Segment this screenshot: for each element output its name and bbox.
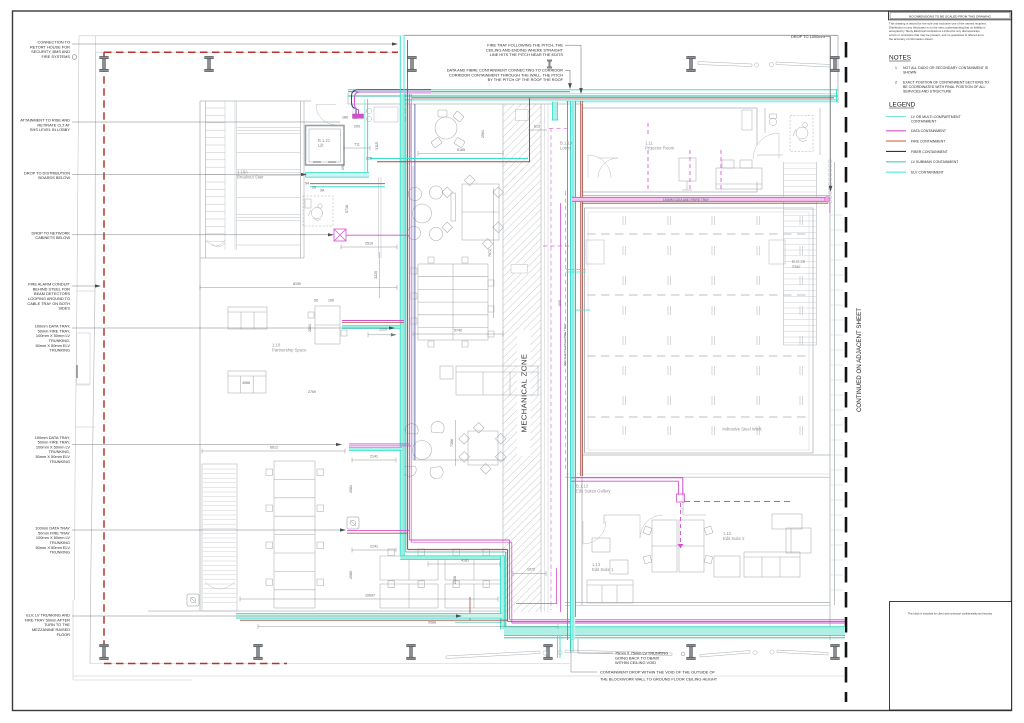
- svg-text:4966: 4966: [242, 381, 250, 385]
- svg-text:5185: 5185: [457, 148, 465, 152]
- svg-text:200: 200: [354, 125, 360, 129]
- svg-text:MECHANICAL ZONE: MECHANICAL ZONE: [520, 354, 529, 433]
- svg-text:608: 608: [558, 300, 562, 306]
- svg-text:8150: 8150: [293, 282, 301, 286]
- svg-text:150mm DATA AND FIBRE TRAY: 150mm DATA AND FIBRE TRAY: [563, 323, 567, 366]
- svg-text:CABINETS BELOW: CABINETS BELOW: [35, 235, 70, 240]
- svg-text:225: 225: [366, 157, 372, 161]
- svg-text:FIBER CONTAINMENT: FIBER CONTAINMENT: [911, 150, 949, 154]
- svg-text:10697: 10697: [365, 594, 375, 598]
- svg-text:7356: 7356: [450, 439, 454, 447]
- svg-text:2080: 2080: [349, 571, 353, 579]
- svg-text:1: 1: [895, 66, 897, 70]
- svg-text:9586: 9586: [428, 621, 436, 625]
- svg-text:CONTINUED ON ADJACENT SHEET: CONTINUED ON ADJACENT SHEET: [856, 308, 863, 412]
- svg-text:2081: 2081: [349, 485, 353, 493]
- svg-text:NOT ALL DADO OR SECONDARY CONT: NOT ALL DADO OR SECONDARY CONTAINMENT IS: [903, 66, 989, 70]
- svg-text:94: 94: [305, 182, 309, 186]
- svg-text:Edit Suite 1: Edit Suite 1: [592, 567, 614, 572]
- svg-text:Edit Suites Gallery: Edit Suites Gallery: [576, 489, 611, 494]
- svg-text:LV SUBMAIN CONTAINMENT: LV SUBMAIN CONTAINMENT: [911, 160, 959, 164]
- svg-text:25: 25: [312, 186, 316, 190]
- svg-text:1220: 1220: [379, 328, 387, 332]
- svg-text:50: 50: [314, 299, 318, 303]
- svg-text:THE BLOCKWORK WALL TO GROUND F: THE BLOCKWORK WALL TO GROUND FLOOR CEILI…: [600, 676, 718, 681]
- svg-text:TRUNKING: TRUNKING: [50, 550, 70, 555]
- svg-text:1972: 1972: [527, 568, 535, 572]
- svg-text:5718: 5718: [345, 205, 349, 213]
- svg-text:711: 711: [354, 143, 360, 147]
- svg-text:2561: 2561: [481, 130, 485, 138]
- svg-text:180: 180: [342, 116, 348, 120]
- svg-text:9A: 9A: [320, 189, 325, 193]
- svg-text:Stair: Stair: [792, 264, 801, 269]
- svg-text:CONTAINMENT: CONTAINMENT: [911, 120, 937, 124]
- svg-text:BE COORDINATED WITH FINAL POSI: BE COORDINATED WITH FINAL POSITION OF AL…: [903, 85, 986, 89]
- svg-text:Lobby: Lobby: [560, 146, 572, 151]
- svg-text:2: 2: [895, 80, 897, 84]
- svg-text:7672: 7672: [488, 249, 492, 257]
- svg-text:150MM DATA AND FIBRE TRAY: 150MM DATA AND FIBRE TRAY: [663, 198, 710, 202]
- svg-text:FLOOR: FLOOR: [57, 632, 71, 637]
- svg-text:CONTAINMENT DROP WITHIN THE VO: CONTAINMENT DROP WITHIN THE VOID OF THE …: [600, 670, 715, 675]
- svg-text:SHS LEVEL IN LOBBY: SHS LEVEL IN LOBBY: [30, 127, 70, 132]
- svg-text:NO DIMENSIONS TO BE SCALED FRO: NO DIMENSIONS TO BE SCALED FROM THIS DRA…: [909, 15, 991, 19]
- svg-text:LV OR MULTI-COMPARTMENT: LV OR MULTI-COMPARTMENT: [911, 115, 962, 119]
- svg-text:EXACT POSITION OF CONTAINMENT: EXACT POSITION OF CONTAINMENT SECTIONS T…: [903, 80, 989, 84]
- svg-text:BY THE PITCH OF THE ROOF THE R: BY THE PITCH OF THE ROOF THE ROOF: [488, 77, 564, 82]
- svg-text:SIDES: SIDES: [58, 306, 70, 311]
- svg-text:FIRE CONTAINMENT: FIRE CONTAINMENT: [911, 139, 946, 143]
- svg-text:Edit Suite 2: Edit Suite 2: [723, 536, 745, 541]
- svg-text:6612: 6612: [270, 446, 278, 450]
- svg-text:5740: 5740: [454, 329, 462, 333]
- svg-text:LEGEND: LEGEND: [889, 102, 916, 109]
- svg-text:613: 613: [534, 125, 540, 129]
- svg-text:SHOWN: SHOWN: [903, 71, 917, 75]
- svg-text:2519: 2519: [365, 242, 373, 246]
- svg-text:4181: 4181: [461, 559, 469, 563]
- svg-text:Projector Room: Projector Room: [645, 146, 675, 151]
- svg-text:2769: 2769: [308, 390, 316, 394]
- svg-text:ELV CONTAINMENT: ELV CONTAINMENT: [911, 171, 945, 175]
- svg-text:BOARDS BELOW: BOARDS BELOW: [38, 175, 70, 180]
- svg-text:DROP TO 1000mm: DROP TO 1000mm: [791, 34, 825, 39]
- svg-text:3115: 3115: [375, 142, 379, 150]
- svg-text:TRUNKING: TRUNKING: [50, 348, 70, 353]
- svg-text:NOTES: NOTES: [889, 55, 911, 62]
- svg-text:3220: 3220: [374, 271, 378, 279]
- svg-text:2141: 2141: [370, 545, 378, 549]
- svg-text:DATA CONTAINMENT: DATA CONTAINMENT: [911, 129, 947, 133]
- svg-text:Indicative Steel Work: Indicative Steel Work: [722, 427, 762, 432]
- svg-text:SERVICES AND STRUCTURE: SERVICES AND STRUCTURE: [903, 90, 952, 94]
- svg-text:Partnership Space: Partnership Space: [272, 348, 307, 353]
- svg-text:FIRE SYSTEMS: FIRE SYSTEMS: [41, 54, 70, 59]
- svg-text:This block is indicated for cl: This block is indicated for client and c…: [908, 612, 993, 616]
- svg-text:2108: 2108: [453, 576, 457, 584]
- svg-text:100: 100: [328, 299, 334, 303]
- svg-text:2141: 2141: [370, 455, 378, 459]
- svg-text:LINE HITS THE PITCH NEAR THE E: LINE HITS THE PITCH NEAR THE EDITS: [490, 52, 564, 57]
- svg-text:the accuracy of information sh: the accuracy of information shown.: [889, 37, 934, 41]
- svg-text:TRUNKING: TRUNKING: [50, 459, 70, 464]
- svg-text:2861: 2861: [308, 324, 312, 332]
- svg-text:Breakout Stair: Breakout Stair: [237, 175, 264, 180]
- svg-text:WITHIN CEILING VOID: WITHIN CEILING VOID: [615, 660, 656, 665]
- svg-text:Lift: Lift: [318, 143, 324, 148]
- svg-text:294: 294: [341, 164, 345, 170]
